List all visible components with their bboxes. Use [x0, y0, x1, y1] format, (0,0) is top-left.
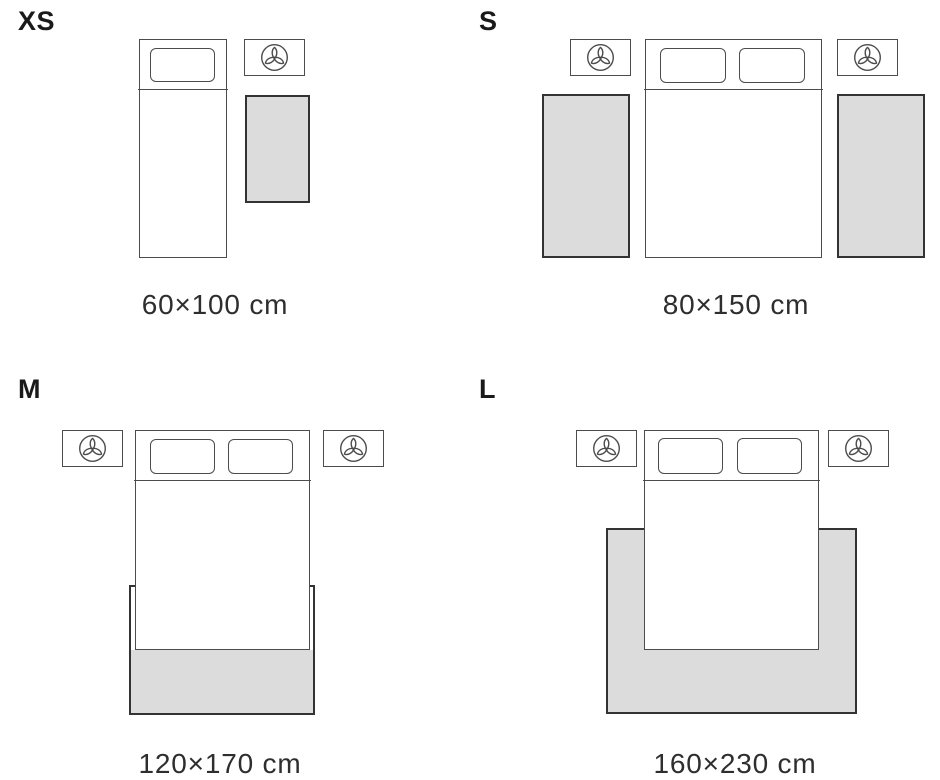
nightstand-s-left [570, 39, 631, 76]
rug-s-right [837, 94, 925, 258]
size-label-m: M [18, 376, 41, 403]
dimension-label-m: 120×170 cm [139, 750, 302, 778]
dimension-label-xs: 60×100 cm [142, 291, 289, 319]
headboard-divider [134, 480, 310, 481]
pillow [150, 48, 215, 82]
rug-s-left [542, 94, 630, 258]
rug-size-guide: XS 60×100 cm S 80×150 cm M 120×170 [0, 0, 940, 780]
pillow [739, 48, 805, 83]
headboard-divider [644, 89, 822, 90]
bed-m [135, 430, 310, 650]
nightstand-s-right [837, 39, 898, 76]
dimension-label-l: 160×230 cm [654, 750, 817, 778]
nightstand-l-left [576, 430, 637, 467]
lamp-trefoil-icon [76, 432, 109, 465]
pillow [228, 439, 293, 474]
lamp-trefoil-icon [584, 41, 617, 74]
dimension-label-s: 80×150 cm [663, 291, 810, 319]
bed-l [644, 430, 819, 650]
nightstand-m-right [323, 430, 384, 467]
bed-s [645, 39, 822, 258]
size-label-l: L [479, 376, 496, 403]
pillow [737, 438, 802, 474]
lamp-trefoil-icon [337, 432, 370, 465]
headboard-divider [138, 89, 227, 90]
nightstand-l-right [828, 430, 889, 467]
lamp-trefoil-icon [590, 432, 623, 465]
size-label-xs: XS [18, 8, 55, 35]
pillow [150, 439, 215, 474]
lamp-trefoil-icon [258, 41, 291, 74]
nightstand-xs [244, 39, 305, 76]
lamp-trefoil-icon [842, 432, 875, 465]
pillow [660, 48, 726, 83]
size-label-s: S [479, 8, 498, 35]
nightstand-m-left [62, 430, 123, 467]
lamp-trefoil-icon [851, 41, 884, 74]
rug-m-visible-area [131, 650, 313, 713]
pillow [658, 438, 723, 474]
headboard-divider [643, 480, 819, 481]
bed-xs [139, 39, 227, 258]
rug-xs [245, 95, 310, 203]
